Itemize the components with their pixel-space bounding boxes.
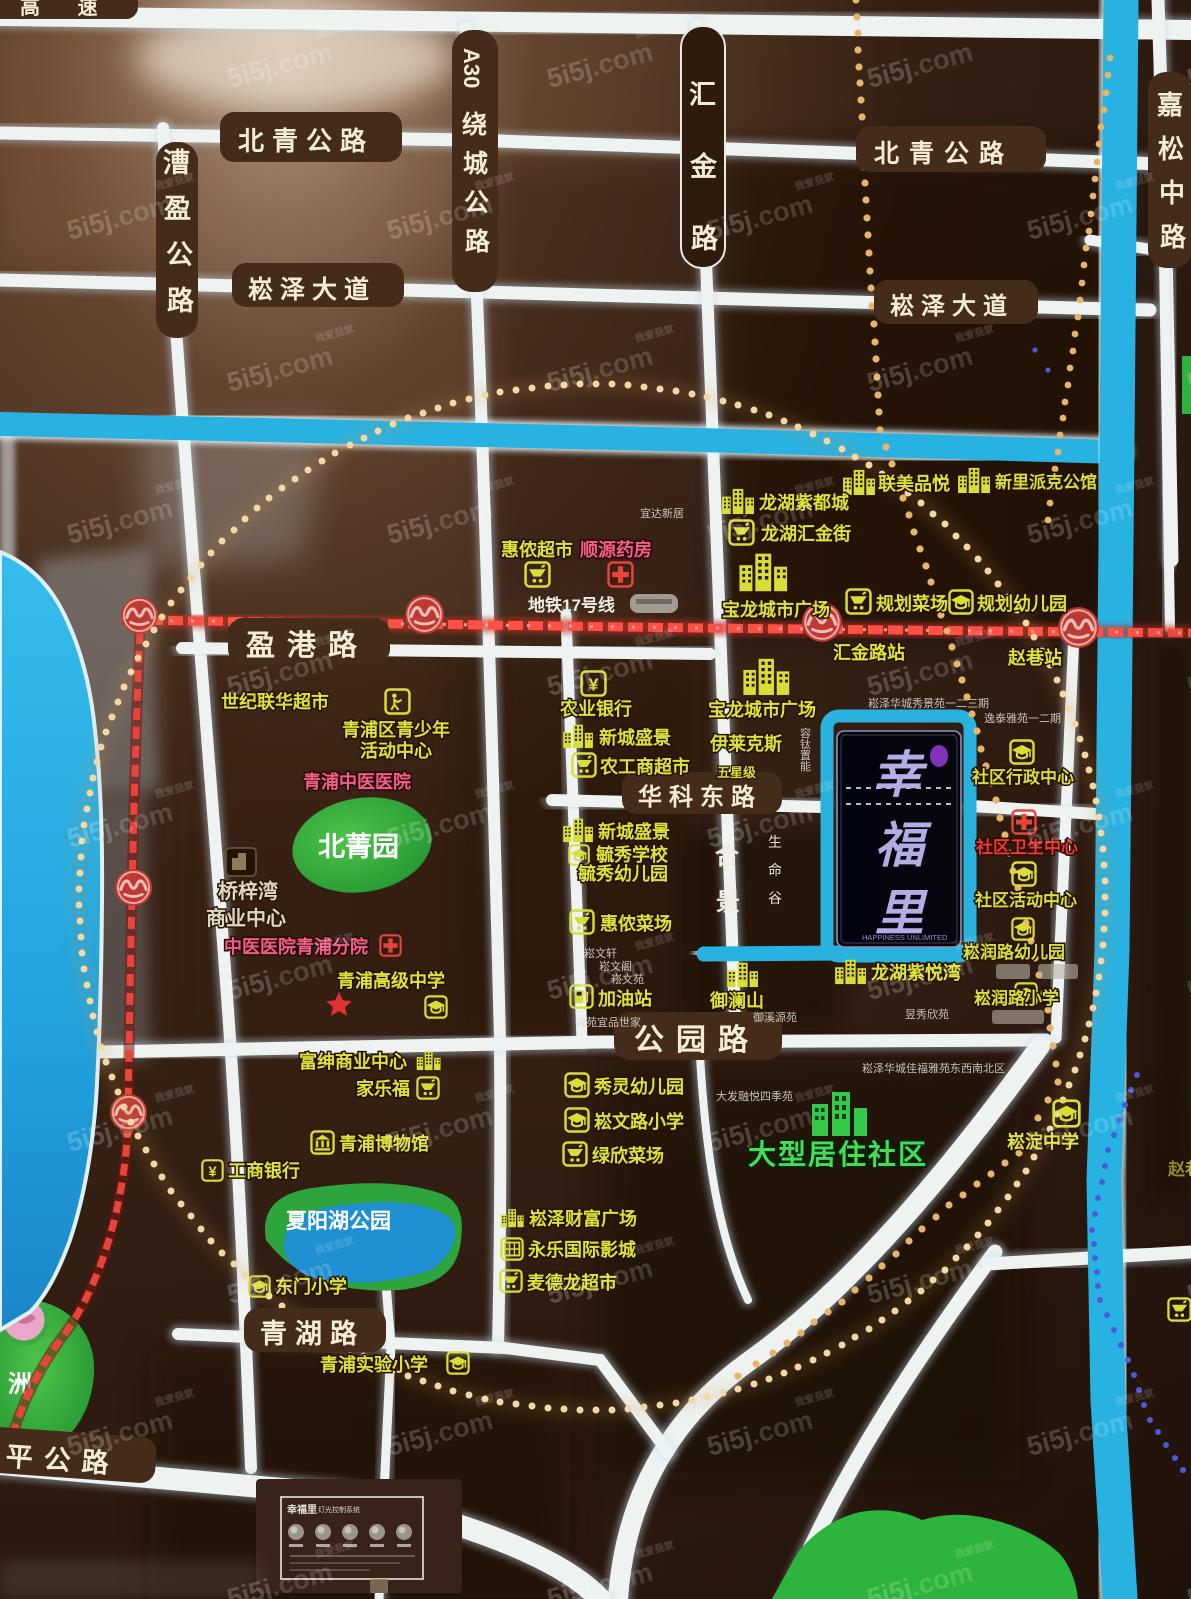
svg-text:崧泽大道: 崧泽大道: [890, 292, 1014, 320]
svg-text:谷: 谷: [768, 890, 782, 906]
svg-text:公: 公: [166, 240, 193, 270]
svg-text:绕: 绕: [462, 110, 487, 139]
svg-text:农工商超市: 农工商超市: [599, 756, 690, 777]
svg-text:灯光控制系统: 灯光控制系统: [318, 1505, 360, 1514]
svg-text:崧泽华城秀景苑一二三期: 崧泽华城秀景苑一二三期: [868, 696, 989, 710]
svg-text:松: 松: [1158, 134, 1184, 164]
svg-text:幸: 幸: [872, 747, 928, 803]
svg-text:富绅商业中心: 富绅商业中心: [299, 1051, 407, 1072]
svg-text:A30: A30: [459, 48, 484, 88]
svg-text:联美品悦: 联美品悦: [878, 473, 950, 494]
svg-text:商业中心: 商业中心: [206, 906, 286, 930]
svg-text:容: 容: [800, 726, 811, 740]
svg-text:惠侬菜场: 惠侬菜场: [600, 913, 672, 934]
svg-text:宝龙城市广场: 宝龙城市广场: [722, 599, 830, 620]
svg-text:幸福里: 幸福里: [287, 1503, 317, 1516]
svg-text:夏阳湖公园: 夏阳湖公园: [286, 1210, 391, 1233]
svg-text:青浦区青少年: 青浦区青少年: [342, 719, 450, 740]
svg-text:农业银行: 农业银行: [559, 698, 632, 719]
svg-text:毓秀幼儿园: 毓秀幼儿园: [578, 863, 668, 884]
svg-text:金: 金: [689, 151, 718, 182]
svg-text:嘉: 嘉: [1157, 90, 1183, 120]
svg-text:汇: 汇: [689, 80, 716, 110]
svg-text:HAPPINESS UNLIMITED: HAPPINESS UNLIMITED: [862, 933, 948, 942]
svg-text:高 速: 高 速: [20, 0, 114, 19]
svg-text:御溪源苑: 御溪源苑: [753, 1010, 797, 1024]
svg-text:社区行政中心: 社区行政中心: [971, 767, 1074, 787]
svg-text:青浦实验小学: 青浦实验小学: [320, 1354, 428, 1375]
svg-text:桥梓湾: 桥梓湾: [218, 879, 278, 903]
svg-text:规划幼儿园: 规划幼儿园: [977, 593, 1067, 614]
svg-text:崧泽大道: 崧泽大道: [248, 275, 376, 304]
svg-text:新里派克公馆: 新里派克公馆: [995, 472, 1097, 492]
svg-text:景: 景: [716, 889, 740, 916]
svg-text:路: 路: [167, 285, 195, 316]
svg-text:鑫苑宜品世家: 鑫苑宜品世家: [575, 1015, 641, 1029]
svg-text:青湖路: 青湖路: [260, 1318, 365, 1349]
svg-text:路: 路: [1160, 222, 1187, 252]
svg-text:中: 中: [1159, 178, 1185, 208]
svg-text:路: 路: [465, 228, 491, 256]
svg-text:家乐福: 家乐福: [356, 1078, 410, 1099]
svg-text:宜达新居: 宜达新居: [640, 506, 684, 520]
svg-text:宝龙城市广场: 宝龙城市广场: [708, 699, 816, 720]
svg-text:公园路: 公园路: [634, 1024, 760, 1057]
svg-text:城: 城: [463, 150, 488, 178]
svg-text:崧泽财富广场: 崧泽财富广场: [529, 1208, 637, 1229]
svg-text:崧文路小学: 崧文路小学: [594, 1111, 684, 1132]
svg-text:永乐国际影城: 永乐国际影城: [527, 1239, 636, 1260]
svg-text:伊莱克斯: 伊莱克斯: [709, 733, 782, 754]
svg-text:规划菜场: 规划菜场: [876, 593, 948, 614]
svg-text:华科东路: 华科东路: [638, 783, 762, 811]
svg-text:钛: 钛: [800, 737, 811, 751]
svg-text:毓秀学校: 毓秀学校: [596, 844, 669, 865]
svg-text:五星级: 五星级: [717, 765, 757, 780]
svg-text:新城盛景: 新城盛景: [598, 821, 670, 842]
svg-text:崧泽华城佳福雅苑东西南北区: 崧泽华城佳福雅苑东西南北区: [862, 1061, 1005, 1075]
svg-text:福: 福: [875, 819, 932, 873]
svg-text:大发融悦四季苑: 大发融悦四季苑: [716, 1089, 793, 1103]
svg-text:活动中心: 活动中心: [360, 740, 432, 761]
svg-text:工商银行: 工商银行: [228, 1160, 300, 1181]
svg-text:大型居住社区: 大型居住社区: [748, 1138, 928, 1170]
svg-text:青浦高级中学: 青浦高级中学: [337, 970, 445, 991]
svg-text:青浦中医医院: 青浦中医医院: [303, 771, 411, 792]
svg-text:崧润路小学: 崧润路小学: [974, 988, 1059, 1008]
svg-text:新城盛景: 新城盛景: [599, 727, 671, 748]
svg-text:命: 命: [768, 862, 782, 878]
svg-text:惠侬超市: 惠侬超市: [501, 539, 573, 560]
svg-text:秀灵幼儿园: 秀灵幼儿园: [593, 1076, 684, 1097]
svg-text:顺源药房: 顺源药房: [580, 539, 652, 560]
svg-text:绿欣菜场: 绿欣菜场: [592, 1145, 664, 1166]
svg-text:汇金路站: 汇金路站: [833, 642, 905, 663]
svg-text:逸泰雅苑一二期: 逸泰雅苑一二期: [984, 711, 1061, 725]
svg-text:昱秀欣苑: 昱秀欣苑: [905, 1007, 949, 1021]
svg-text:御澜山: 御澜山: [709, 990, 764, 1011]
svg-text:北青公路: 北青公路: [874, 140, 1014, 168]
svg-text:社区活动中心: 社区活动中心: [974, 890, 1077, 910]
svg-text:北青公路: 北青公路: [238, 126, 374, 156]
svg-text:赵巷站: 赵巷站: [1007, 647, 1062, 668]
svg-text:地铁17号线: 地铁17号线: [528, 595, 615, 615]
svg-text:能: 能: [800, 759, 811, 773]
